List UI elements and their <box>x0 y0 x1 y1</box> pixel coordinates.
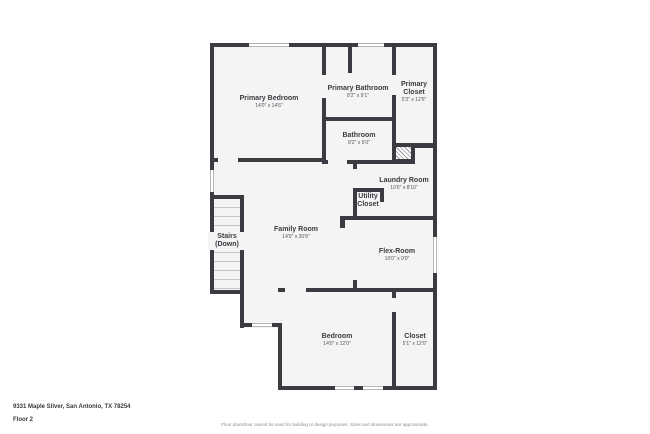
wall-laundry-flex-divider <box>344 216 437 220</box>
room-name: Bedroom <box>322 333 353 341</box>
room-label-bedroom: Bedroom 14'0" x 12'0" <box>322 333 353 348</box>
room-dims: 5'1" x 12'0" <box>403 342 428 348</box>
room-dims: 10'0" x 8'10" <box>379 186 428 192</box>
window <box>358 43 384 47</box>
room-label-flex-room: Flex-Room 10'0" x 9'0" <box>379 248 415 263</box>
room-dims: 8'2" x 5'0" <box>342 141 375 147</box>
room-name: Bathroom <box>342 132 375 140</box>
room-name: Laundry Room <box>379 177 428 185</box>
wall-left <box>210 43 214 294</box>
disclaimer-text: Floor plans/tour cannot be used for buil… <box>221 422 428 427</box>
wall-laundry-hall-stub <box>353 162 357 169</box>
room-dims: 14'0" x 12'0" <box>322 342 353 348</box>
wall-closet-divider-stub <box>392 292 396 298</box>
wall-hatch-right <box>411 143 415 163</box>
room-label-primary-bathroom: Primary Bathroom 8'2" x 9'1" <box>327 85 388 100</box>
room-name: Primary Closet <box>393 81 435 97</box>
wall-shower-stub <box>348 45 352 73</box>
room-name: Primary Bedroom <box>240 95 299 103</box>
room-label-stairs: Stairs (Down) <box>208 232 246 250</box>
wall-flex-bedroom-stub <box>353 280 357 292</box>
room-dims: 5'3" x 12'6" <box>393 98 435 104</box>
wall-bedroom-bath-divider-lower <box>322 98 326 164</box>
room-label-bathroom: Bathroom 8'2" x 5'0" <box>342 132 375 147</box>
room-dims: 14'0" x 20'8" <box>274 235 318 241</box>
wall-bedroom-bath-divider-upper <box>322 43 326 75</box>
wall-closet-divider <box>392 312 396 390</box>
room-dims: 10'0" x 9'0" <box>379 257 415 263</box>
room-dims: 8'2" x 9'1" <box>327 94 388 100</box>
room-label-utility-closet: Utility Closet <box>352 193 384 209</box>
window <box>210 170 214 192</box>
wall-bedroom-top-left <box>278 288 285 292</box>
room-label-primary-closet: Primary Closet 5'3" x 12'6" <box>393 81 435 104</box>
floor-label: Floor 2 <box>13 417 33 423</box>
hatched-area <box>396 147 411 159</box>
floor-plan: Primary Bedroom 14'0" x 14'6" Primary Ba… <box>0 0 650 434</box>
wall-stairs-right <box>240 195 244 328</box>
room-name: Family Room <box>274 226 318 234</box>
wall-bedroom-top <box>306 288 437 292</box>
room-name: Closet <box>403 333 428 341</box>
room-name: Utility Closet <box>352 193 384 209</box>
wall-bathrooms-divider <box>322 117 396 121</box>
wall-stairs-top <box>213 195 243 199</box>
room-label-primary-bedroom: Primary Bedroom 14'0" x 14'6" <box>240 95 299 110</box>
window <box>363 386 383 390</box>
property-address: 9331 Maple Silver, San Antonio, TX 78254 <box>13 404 131 410</box>
room-dims: 14'0" x 14'6" <box>240 104 299 110</box>
room-name: Primary Bathroom <box>327 85 388 93</box>
room-label-closet: Closet 5'1" x 12'0" <box>403 333 428 348</box>
window <box>252 323 272 327</box>
room-name: Flex-Room <box>379 248 415 256</box>
wall-bedroom-left <box>278 323 282 390</box>
room-name: Stairs (Down) <box>210 233 244 249</box>
room-label-laundry-room: Laundry Room 10'0" x 8'10" <box>379 177 428 192</box>
wall-primary-bedroom-bottom <box>238 158 326 162</box>
window <box>433 237 437 273</box>
wall-stairs-bottom <box>210 290 244 294</box>
wall-divider-end-cap <box>340 216 345 228</box>
window <box>335 386 354 390</box>
room-label-family-room: Family Room 14'0" x 20'8" <box>274 226 318 241</box>
wall-primary-closet-left-upper <box>392 45 396 75</box>
wall-bedroom-bottom <box>278 386 437 390</box>
window <box>249 43 289 47</box>
